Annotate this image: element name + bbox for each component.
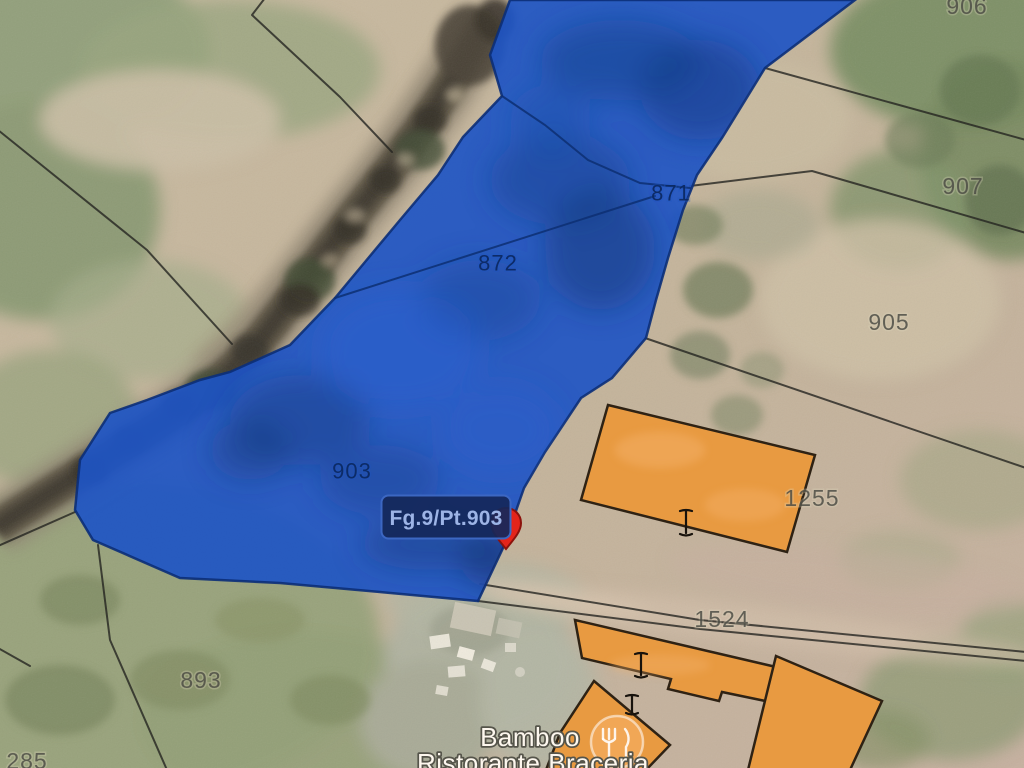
- parcel-label-893: 893: [180, 667, 221, 693]
- tooltip-label: Fg.9/Pt.903: [389, 507, 502, 530]
- parcel-label-906: 906: [946, 0, 987, 19]
- parcel-label-285: 285: [6, 748, 47, 768]
- parcel-label-905: 905: [868, 309, 909, 335]
- parcel-label-903: 903: [332, 459, 372, 484]
- parcel-label-1255: 1255: [784, 485, 839, 511]
- parcel-label-872: 872: [478, 251, 518, 276]
- map-viewport[interactable]: 906 907 905 1255 1524 893 285 871 872 90…: [0, 0, 1024, 768]
- parcel-label-871: 871: [651, 181, 691, 206]
- parcel-label-1524: 1524: [694, 606, 749, 632]
- poi-name-line2: Ristorante Braceria: [417, 748, 649, 768]
- parcel-label-907: 907: [942, 173, 983, 199]
- map-canvas[interactable]: 906 907 905 1255 1524 893 285 871 872 90…: [0, 0, 1024, 768]
